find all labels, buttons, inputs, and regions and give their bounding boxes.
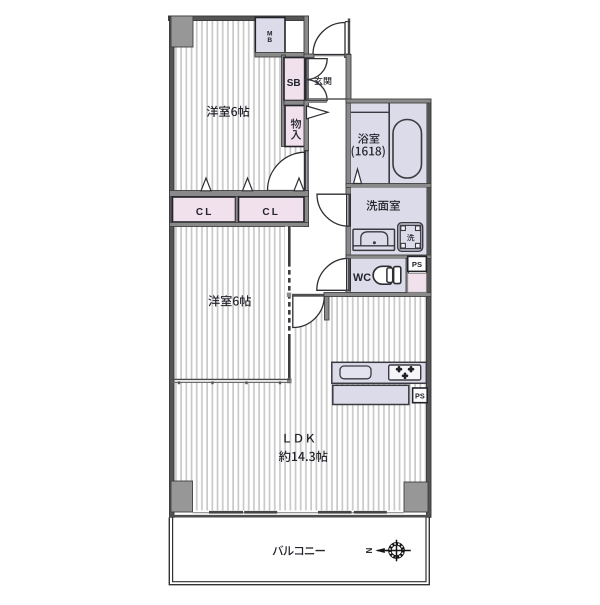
- svg-text:PS: PS: [415, 391, 425, 400]
- svg-text:CL: CL: [196, 207, 214, 218]
- svg-text:N: N: [365, 547, 374, 553]
- svg-text:B: B: [267, 37, 272, 44]
- svg-text:WC: WC: [353, 272, 371, 284]
- svg-text:PS: PS: [412, 260, 422, 269]
- svg-text:CL: CL: [262, 207, 280, 218]
- svg-text:SB: SB: [287, 78, 301, 89]
